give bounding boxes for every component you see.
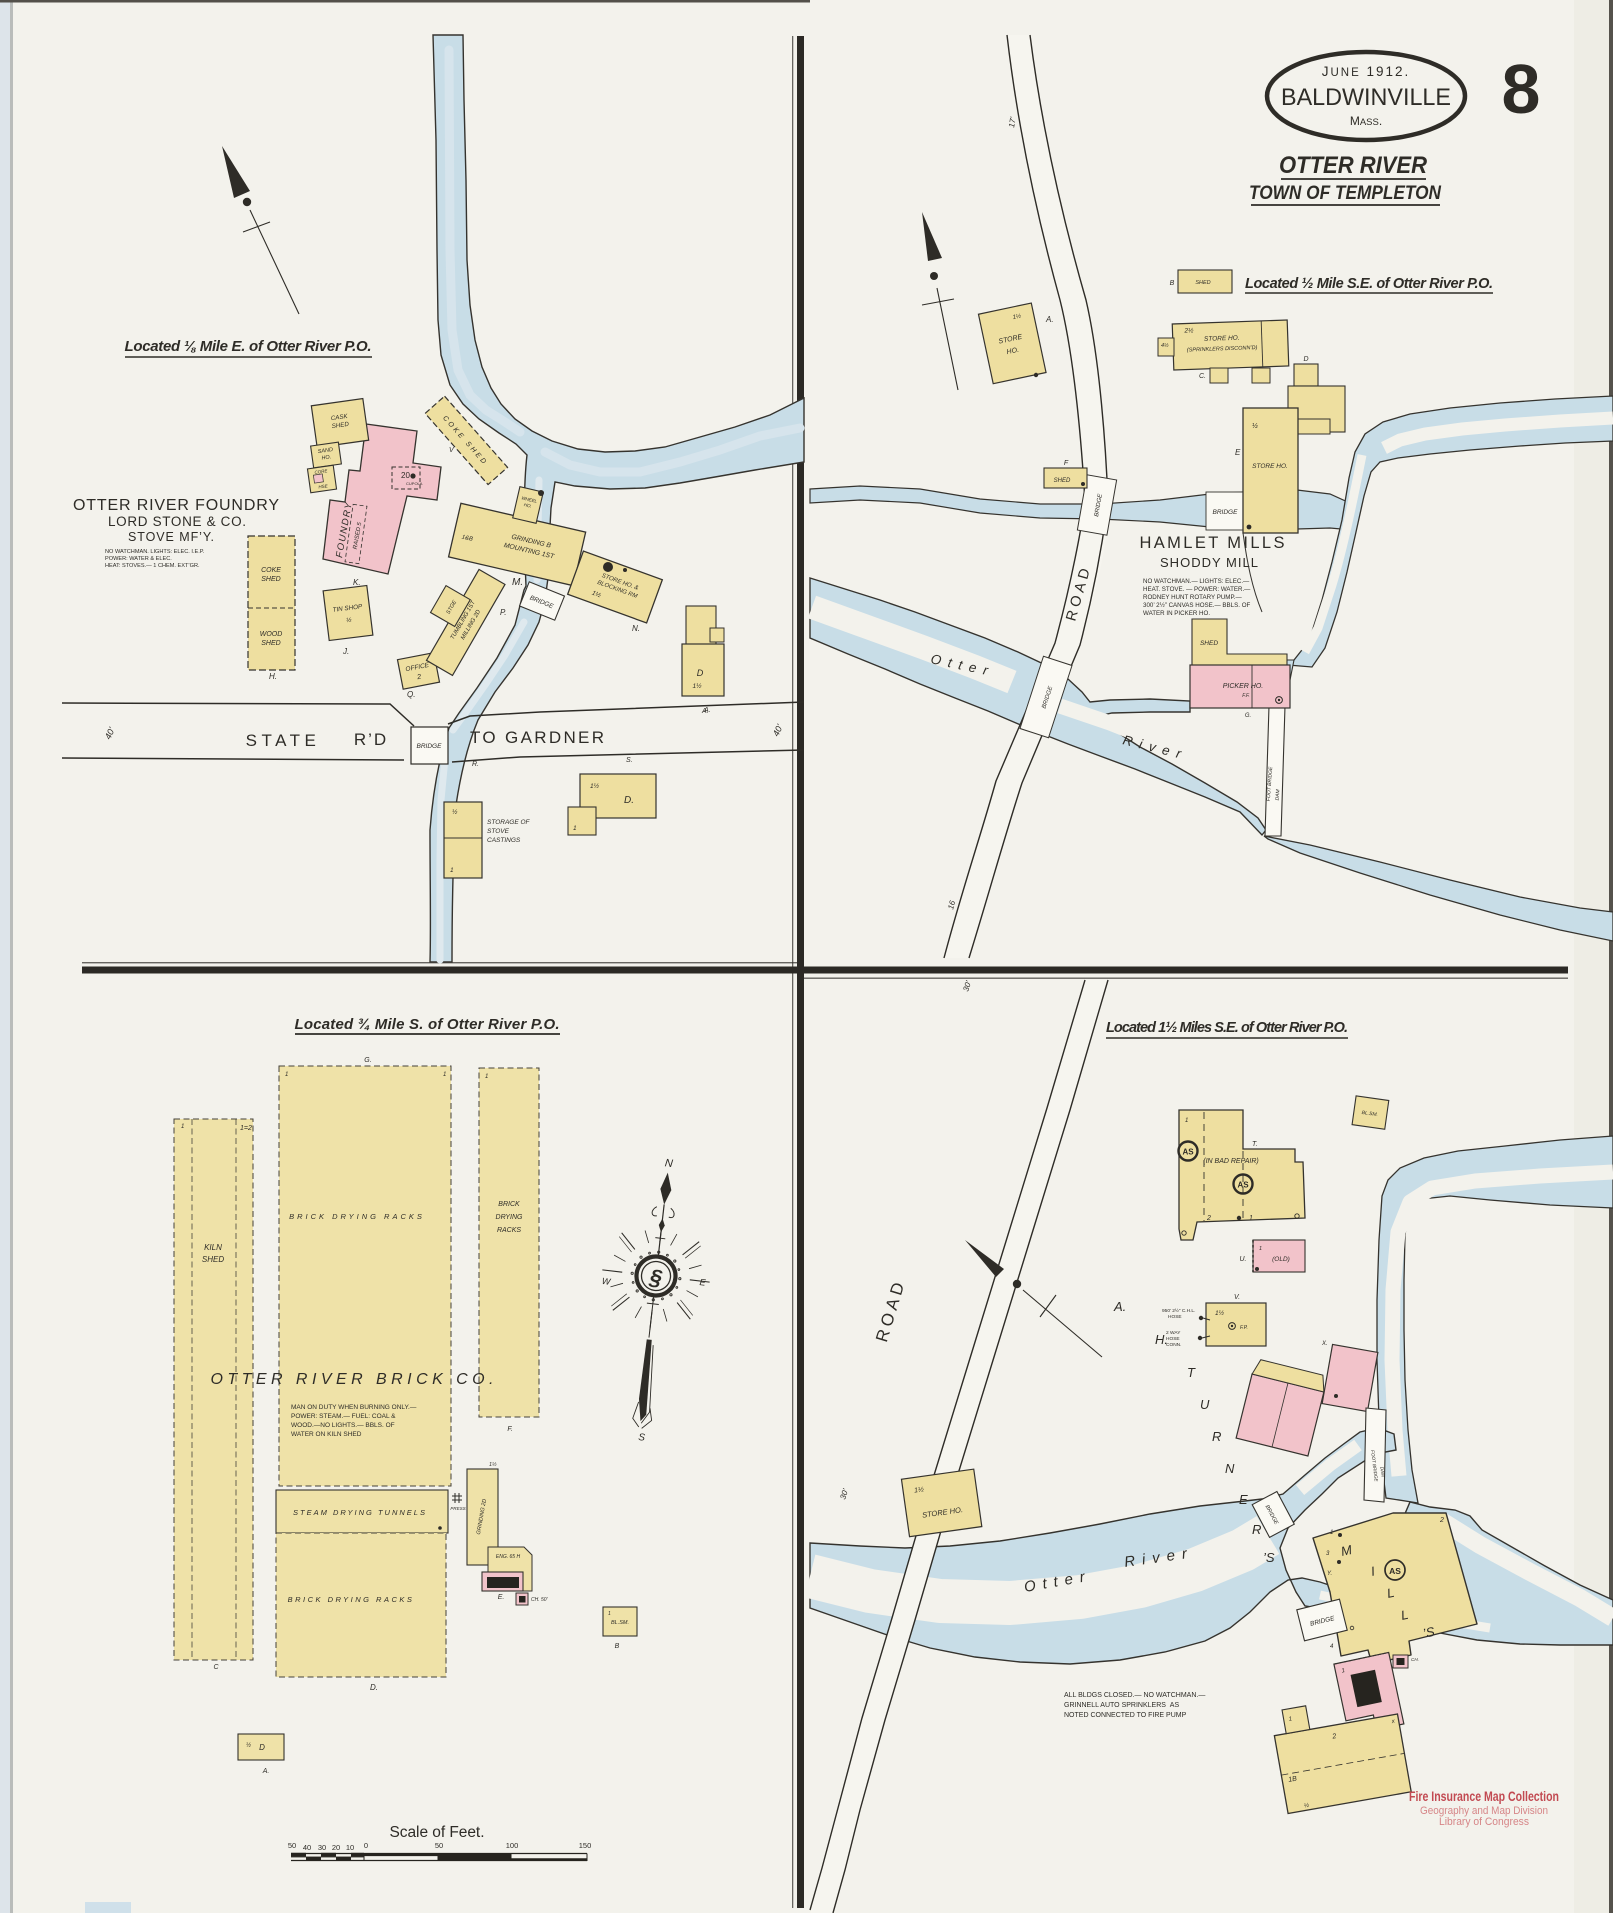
svg-text:’S: ’S xyxy=(1263,1550,1275,1565)
svg-text:B: B xyxy=(1170,280,1175,287)
svg-text:N.: N. xyxy=(632,624,640,633)
svg-text:WOOD.—NO LIGHTS.— BBLS. OF: WOOD.—NO LIGHTS.— BBLS. OF xyxy=(291,1422,395,1429)
svg-text:1: 1 xyxy=(285,1072,288,1078)
svg-text:CASTINGS: CASTINGS xyxy=(487,837,521,844)
svg-text:V.: V. xyxy=(1234,1294,1240,1301)
svg-text:BRIDGE: BRIDGE xyxy=(417,743,443,750)
svg-text:E: E xyxy=(1239,1492,1248,1507)
svg-text:1: 1 xyxy=(1330,1530,1333,1536)
svg-text:A.: A. xyxy=(703,707,711,714)
svg-text:Fire Insurance Map Collection: Fire Insurance Map Collection xyxy=(1409,1789,1559,1804)
svg-text:2: 2 xyxy=(1439,1517,1444,1524)
svg-text:J.: J. xyxy=(342,647,349,656)
svg-text:SHED: SHED xyxy=(1200,640,1218,647)
svg-text:2 WAY: 2 WAY xyxy=(1166,1330,1181,1336)
svg-text:A.: A. xyxy=(1045,315,1054,324)
svg-text:HEAT: STOVES.— 1 CHEM. EXT’GR.: HEAT: STOVES.— 1 CHEM. EXT’GR. xyxy=(105,563,200,569)
svg-text:G.: G. xyxy=(1245,713,1251,719)
svg-text:2: 2 xyxy=(1206,1215,1211,1222)
svg-text:ALL BLDGS CLOSED.— NO WATCHMAN: ALL BLDGS CLOSED.— NO WATCHMAN.— xyxy=(1064,1692,1205,1699)
svg-text:NO WATCHMAN. LIGHTS: ELEC. I.E: NO WATCHMAN. LIGHTS: ELEC. I.E.P. xyxy=(105,549,205,555)
svg-text:Located ⅛ Mile E. of Otter Riv: Located ⅛ Mile E. of Otter River P.O. xyxy=(125,338,372,355)
svg-text:E: E xyxy=(1235,448,1241,457)
svg-text:R: R xyxy=(1212,1429,1221,1444)
svg-text:BRIDGE: BRIDGE xyxy=(1213,509,1239,516)
svg-text:COKE: COKE xyxy=(261,567,281,574)
svg-text:Located ¾ Mile S. of Otter Riv: Located ¾ Mile S. of Otter River P.O. xyxy=(295,1016,560,1033)
svg-text:Located 1½ Miles S.E. of Otter: Located 1½ Miles S.E. of Otter River P.O… xyxy=(1106,1020,1348,1036)
svg-text:N: N xyxy=(1225,1461,1235,1476)
svg-text:CH. 50’: CH. 50’ xyxy=(531,1597,549,1603)
svg-text:T: T xyxy=(1187,1365,1196,1380)
svg-text:SHED: SHED xyxy=(261,576,280,583)
svg-text:100: 100 xyxy=(506,1841,519,1850)
svg-text:BRICK: BRICK xyxy=(498,1201,520,1208)
svg-text:Located ½ Mile S.E. of Otter R: Located ½ Mile S.E. of Otter River P.O. xyxy=(1245,276,1493,292)
svg-text:LORD STONE & CO.: LORD STONE & CO. xyxy=(108,514,246,529)
svg-text:MASS.: MASS. xyxy=(1350,114,1382,128)
svg-text:DAM: DAM xyxy=(1275,788,1282,800)
svg-text:CH.: CH. xyxy=(1411,1657,1419,1662)
svg-text:NOTED CONNECTED TO FIRE PUMP: NOTED CONNECTED TO FIRE PUMP xyxy=(1064,1712,1187,1719)
svg-text:N: N xyxy=(664,1157,673,1170)
svg-text:AS: AS xyxy=(1182,1148,1194,1157)
svg-text:RACKS: RACKS xyxy=(497,1227,521,1234)
svg-text:HOSE: HOSE xyxy=(1168,1314,1182,1320)
svg-text:HAMLET MILLS: HAMLET MILLS xyxy=(1140,534,1285,552)
svg-text:AS: AS xyxy=(1389,1566,1401,1576)
svg-text:POWER: WATER & ELEC.: POWER: WATER & ELEC. xyxy=(105,556,172,562)
svg-text:A.: A. xyxy=(1113,1299,1126,1314)
svg-text:Y.: Y. xyxy=(1327,1571,1332,1577)
svg-text:2½: 2½ xyxy=(1183,326,1194,334)
svg-text:1½: 1½ xyxy=(692,682,702,690)
svg-text:B: B xyxy=(615,1643,620,1650)
svg-text:JUNE 1912.: JUNE 1912. xyxy=(1322,64,1411,79)
svg-text:30: 30 xyxy=(318,1843,326,1852)
svg-text:U: U xyxy=(1200,1397,1210,1412)
svg-text:C.: C. xyxy=(1199,373,1206,380)
svg-text:OTTER RIVER: OTTER RIVER xyxy=(1279,152,1428,179)
svg-text:SHED: SHED xyxy=(261,640,280,647)
svg-text:STOVE MF’Y.: STOVE MF’Y. xyxy=(128,530,214,544)
svg-text:TOWN OF TEMPLETON: TOWN OF TEMPLETON xyxy=(1249,183,1442,204)
svg-text:½: ½ xyxy=(452,808,458,816)
svg-text:R.: R. xyxy=(472,761,479,768)
svg-text:F: F xyxy=(1064,460,1069,467)
svg-text:0: 0 xyxy=(364,1841,368,1850)
svg-text:STORE HO.: STORE HO. xyxy=(1252,463,1288,470)
svg-text:D: D xyxy=(1303,356,1308,363)
svg-text:(IN BAD REPAIR): (IN BAD REPAIR) xyxy=(1203,1158,1259,1165)
svg-text:STORAGE OF: STORAGE OF xyxy=(487,819,531,826)
svg-text:S.: S. xyxy=(626,757,633,764)
svg-text:1½: 1½ xyxy=(489,1461,497,1468)
svg-text:PRESS: PRESS xyxy=(450,1506,465,1511)
svg-text:1: 1 xyxy=(450,867,454,874)
svg-text:40: 40 xyxy=(303,1843,311,1852)
svg-text:20: 20 xyxy=(332,1843,340,1852)
svg-text:Library of Congress: Library of Congress xyxy=(1439,1816,1529,1828)
svg-text:WATER IN PICKER HO.: WATER IN PICKER HO. xyxy=(1143,610,1210,617)
svg-text:OTTER RIVER FOUNDRY: OTTER RIVER FOUNDRY xyxy=(73,497,279,514)
svg-text:NO WATCHMAN.— LIGHTS: ELEC.—: NO WATCHMAN.— LIGHTS: ELEC.— xyxy=(1143,578,1250,585)
svg-text:R: R xyxy=(1252,1522,1261,1537)
svg-text:SHED: SHED xyxy=(1195,280,1210,286)
svg-text:CONN.: CONN. xyxy=(1166,1342,1181,1348)
svg-text:10: 10 xyxy=(346,1843,354,1852)
svg-text:SHED: SHED xyxy=(1054,478,1071,484)
svg-text:PICKER HO.: PICKER HO. xyxy=(1223,683,1264,690)
svg-text:½: ½ xyxy=(1252,422,1258,430)
svg-text:950’ 2½” C.H.L.: 950’ 2½” C.H.L. xyxy=(1162,1307,1195,1314)
svg-text:ENG. 65 H: ENG. 65 H xyxy=(496,1554,521,1560)
svg-text:1½: 1½ xyxy=(590,782,600,790)
svg-text:1½: 1½ xyxy=(1215,1309,1225,1317)
svg-text:1: 1 xyxy=(608,1611,611,1617)
svg-text:G.: G. xyxy=(364,1057,371,1064)
svg-text:STORE HO.: STORE HO. xyxy=(1204,335,1240,343)
svg-text:R’D: R’D xyxy=(354,730,388,749)
svg-text:SHODDY MILL: SHODDY MILL xyxy=(1160,555,1258,570)
svg-text:M.: M. xyxy=(512,577,523,588)
svg-text:MAN ON DUTY WHEN BURNING ONLY.: MAN ON DUTY WHEN BURNING ONLY.— xyxy=(291,1404,417,1411)
svg-text:50: 50 xyxy=(288,1841,296,1850)
svg-text:H.: H. xyxy=(269,672,277,681)
svg-text:GRINNELL AUTO SPRINKLERS AS: GRINNELL AUTO SPRINKLERS AS xyxy=(1064,1702,1179,1709)
svg-text:STEAM DRYING TUNNELS: STEAM DRYING TUNNELS xyxy=(293,1508,427,1517)
svg-text:HEAT. STOVE. — POWER: WATER.—: HEAT. STOVE. — POWER: WATER.— xyxy=(1143,586,1251,593)
svg-text:BL.SM.: BL.SM. xyxy=(611,1620,629,1626)
svg-text:1½: 1½ xyxy=(914,1485,925,1494)
svg-text:300’ 2½” CANVAS HOSE.— BBLS. O: 300’ 2½” CANVAS HOSE.— BBLS. OF xyxy=(1143,602,1251,609)
svg-text:X.: X. xyxy=(1321,1341,1328,1347)
svg-text:AS: AS xyxy=(1237,1181,1249,1190)
svg-text:A.: A. xyxy=(262,1768,270,1775)
svg-text:HOSE: HOSE xyxy=(1166,1336,1180,1342)
svg-text:17’: 17’ xyxy=(1007,116,1018,128)
svg-text:F.F.: F.F. xyxy=(1242,693,1250,699)
svg-text:STOVE: STOVE xyxy=(487,828,510,835)
svg-text:F.: F. xyxy=(507,1426,512,1433)
svg-text:1: 1 xyxy=(1259,1246,1262,1252)
svg-text:STATE: STATE xyxy=(246,731,321,750)
svg-text:150: 150 xyxy=(579,1841,592,1850)
svg-text:H.: H. xyxy=(1155,1332,1168,1347)
svg-text:Scale of Feet.: Scale of Feet. xyxy=(390,1824,485,1841)
svg-text:TO GARDNER: TO GARDNER xyxy=(470,728,604,747)
svg-text:BALDWINVILLE: BALDWINVILLE xyxy=(1281,84,1451,111)
svg-text:POWER: STEAM.— FUEL: COAL &: POWER: STEAM.— FUEL: COAL & xyxy=(291,1413,396,1420)
svg-text:CUPOLA: CUPOLA xyxy=(406,481,423,486)
svg-text:1: 1 xyxy=(1249,1215,1253,1222)
svg-text:1: 1 xyxy=(485,1074,488,1080)
svg-text:D.: D. xyxy=(624,795,634,806)
svg-text:1: 1 xyxy=(573,825,577,832)
svg-text:U.: U. xyxy=(1240,1256,1247,1263)
svg-text:D: D xyxy=(259,1743,265,1752)
svg-text:T.: T. xyxy=(1252,1141,1258,1148)
svg-text:1: 1 xyxy=(181,1124,184,1130)
svg-text:SHED: SHED xyxy=(202,1255,224,1264)
svg-text:KILN: KILN xyxy=(204,1243,222,1252)
svg-text:½: ½ xyxy=(246,1742,251,1749)
svg-text:20: 20 xyxy=(401,471,410,480)
svg-text:BRICK DRYING RACKS: BRICK DRYING RACKS xyxy=(289,1212,425,1221)
svg-text:F.P.: F.P. xyxy=(1240,1325,1248,1331)
svg-text:(OLD): (OLD) xyxy=(1272,1256,1290,1263)
svg-text:WOOD: WOOD xyxy=(260,631,283,638)
svg-text:P.: P. xyxy=(500,608,507,617)
svg-text:RODNEY HUNT ROTARY PUMP.—: RODNEY HUNT ROTARY PUMP.— xyxy=(1143,594,1242,601)
svg-text:1=2: 1=2 xyxy=(240,1125,252,1132)
svg-text:DRYING: DRYING xyxy=(496,1214,524,1221)
svg-text:Q.: Q. xyxy=(407,690,415,699)
svg-text:D: D xyxy=(697,668,704,678)
svg-text:50: 50 xyxy=(435,1841,443,1850)
svg-text:8: 8 xyxy=(1502,50,1541,128)
svg-text:4½: 4½ xyxy=(1161,342,1169,349)
svg-text:1: 1 xyxy=(1185,1118,1188,1124)
svg-text:1: 1 xyxy=(443,1072,446,1078)
svg-text:K.: K. xyxy=(353,578,361,587)
svg-text:WATER ON KILN SHED: WATER ON KILN SHED xyxy=(291,1431,362,1438)
svg-text:E.: E. xyxy=(498,1594,505,1601)
svg-text:BRICK DRYING RACKS: BRICK DRYING RACKS xyxy=(288,1595,415,1604)
svg-text:D.: D. xyxy=(370,1683,378,1692)
